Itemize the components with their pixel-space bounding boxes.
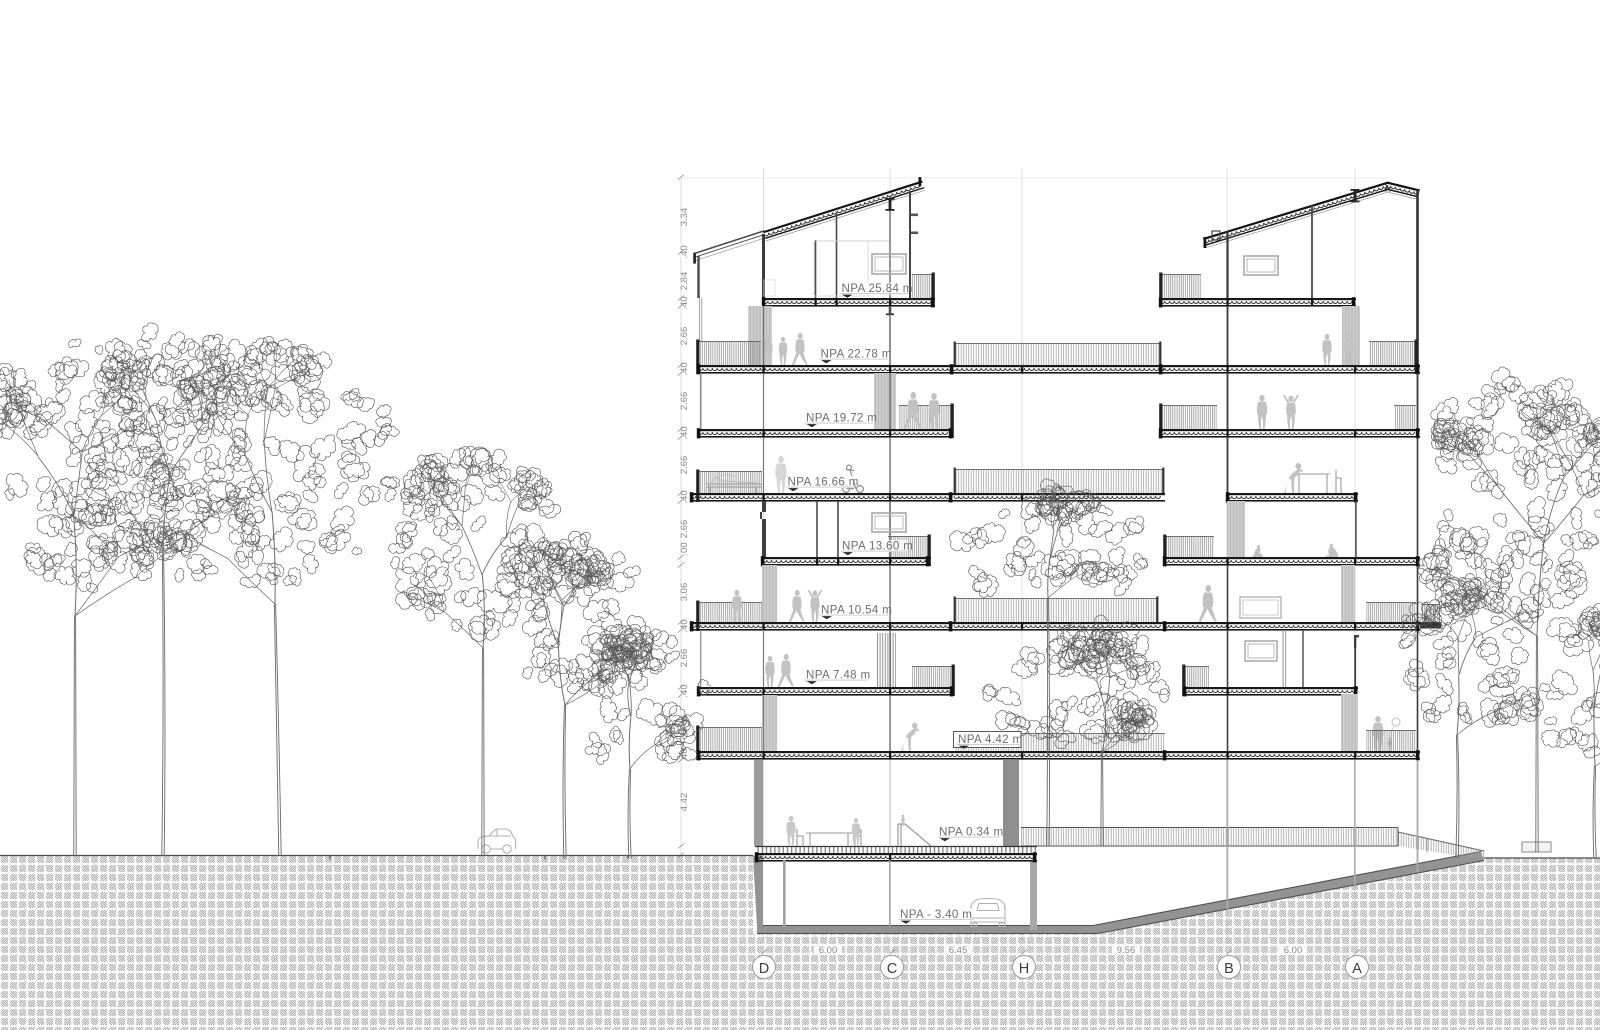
svg-text:NPA - 3.40 m: NPA - 3.40 m [900,908,972,921]
svg-text:D: D [759,961,769,977]
svg-text:2.66: 2.66 [679,392,690,411]
svg-text:.40: .40 [679,362,690,375]
svg-text:.40: .40 [679,296,690,309]
svg-text:C: C [887,961,897,977]
svg-text:9.56: 9.56 [1117,945,1136,956]
svg-text:NPA 19.72 m: NPA 19.72 m [806,412,877,425]
svg-text:NPA 4.42 m: NPA 4.42 m [958,733,1023,746]
svg-text:NPA 10.54 m: NPA 10.54 m [821,604,892,617]
svg-text:.40: .40 [679,426,690,439]
svg-text:6.00: 6.00 [1284,945,1303,956]
svg-text:2.66: 2.66 [679,520,690,539]
svg-text:NPA 22.78 m: NPA 22.78 m [821,348,892,361]
svg-text:2.66: 2.66 [679,456,690,475]
svg-text:2.66: 2.66 [679,649,690,668]
svg-text:3.34: 3.34 [679,208,690,227]
svg-text:.40: .40 [679,245,690,258]
svg-text:H: H [1019,961,1029,977]
svg-text:.40: .40 [679,619,690,632]
svg-text:2.66: 2.66 [679,327,690,346]
svg-text:2.84: 2.84 [679,272,690,291]
svg-text:.00: .00 [679,542,690,555]
svg-text:A: A [1352,961,1362,977]
svg-text:NPA 25.84 m: NPA 25.84 m [842,282,913,295]
svg-text:NPA 16.66 m: NPA 16.66 m [788,476,859,489]
svg-text:6.45: 6.45 [949,945,968,956]
svg-text:NPA 7.48 m: NPA 7.48 m [806,669,871,682]
svg-text:6.00: 6.00 [819,945,838,956]
svg-text:.40: .40 [679,490,690,503]
svg-text:.40: .40 [679,684,690,697]
svg-text:4.42: 4.42 [679,793,690,812]
svg-text:3.06: 3.06 [679,583,690,602]
svg-text:B: B [1224,961,1234,977]
svg-text:NPA 0.34 m: NPA 0.34 m [939,826,1004,839]
svg-text:NPA 13.60 m: NPA 13.60 m [842,540,913,553]
